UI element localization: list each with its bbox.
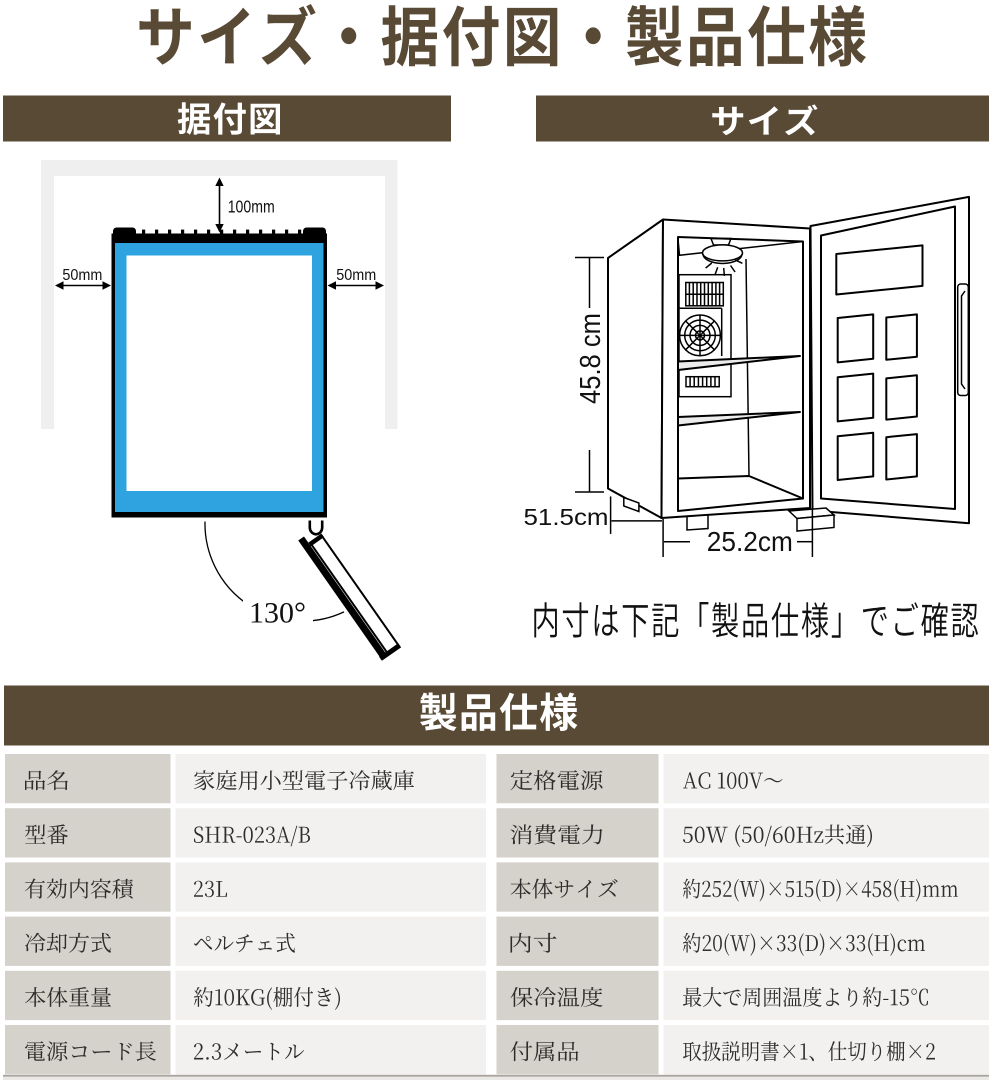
svg-text:100mm: 100mm — [228, 196, 275, 216]
svg-text:130°: 130° — [249, 597, 306, 630]
svg-text:45.8 cm: 45.8 cm — [575, 313, 607, 404]
svg-text:51.5cm: 51.5cm — [524, 504, 609, 530]
svg-text:50mm: 50mm — [62, 267, 102, 284]
svg-text:50mm: 50mm — [336, 267, 376, 284]
svg-text:25.2cm: 25.2cm — [707, 526, 793, 557]
